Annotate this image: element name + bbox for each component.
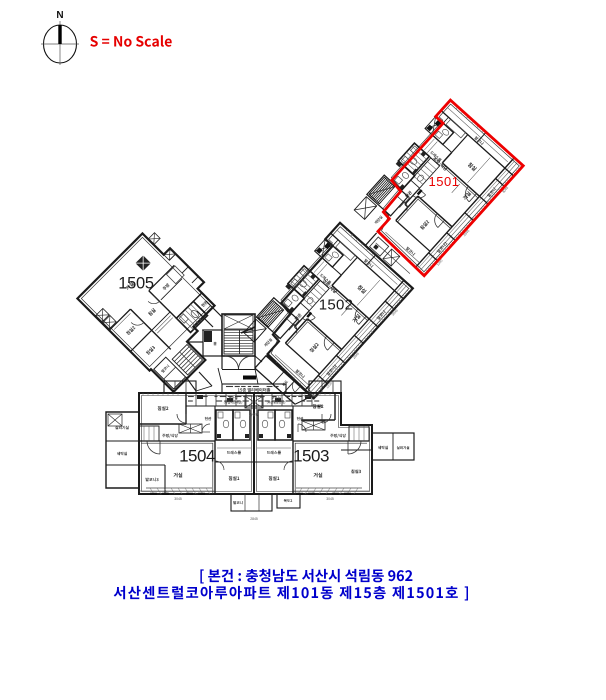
svg-text:3045: 3045 [174,497,182,501]
svg-text:1503: 1503 [293,447,329,466]
svg-text:N: N [56,10,63,21]
svg-text:2845: 2845 [250,517,258,521]
svg-text:1502: 1502 [319,297,354,314]
svg-text:3045: 3045 [326,497,334,501]
svg-text:1501: 1501 [429,174,460,189]
svg-text:1504: 1504 [179,447,215,466]
svg-text:1505: 1505 [118,275,154,293]
